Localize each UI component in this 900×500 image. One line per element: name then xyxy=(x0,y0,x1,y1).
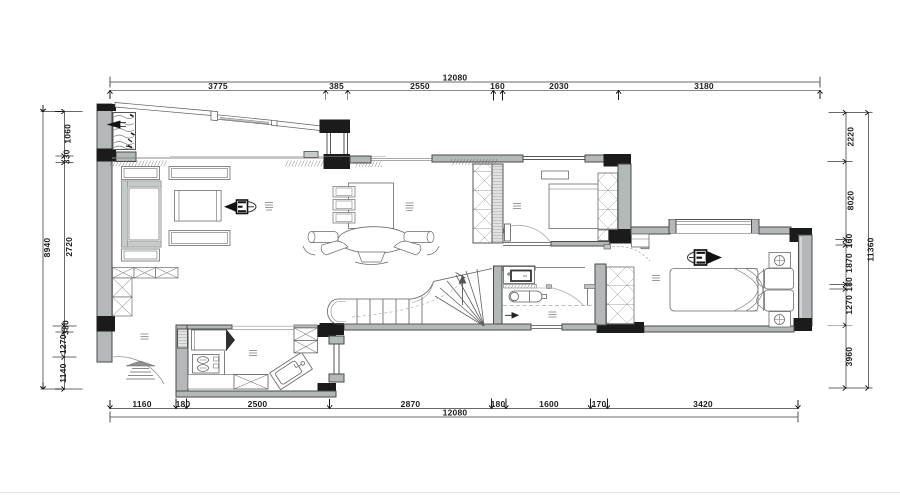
svg-text:3420: 3420 xyxy=(693,399,713,409)
svg-text:180: 180 xyxy=(844,277,854,292)
svg-text:2720: 2720 xyxy=(64,237,74,257)
svg-text:1140: 1140 xyxy=(58,363,68,382)
svg-text:160: 160 xyxy=(490,81,505,91)
svg-text:3775: 3775 xyxy=(208,81,228,91)
svg-text:180: 180 xyxy=(176,399,191,409)
svg-text:1270: 1270 xyxy=(58,334,68,354)
svg-text:160: 160 xyxy=(844,234,854,249)
svg-text:2220: 2220 xyxy=(846,127,856,147)
svg-text:12080: 12080 xyxy=(443,73,468,83)
svg-text:8940: 8940 xyxy=(42,238,52,258)
svg-text:170: 170 xyxy=(592,399,607,409)
svg-text:385: 385 xyxy=(329,81,344,91)
svg-text:330: 330 xyxy=(62,149,72,164)
svg-text:3960: 3960 xyxy=(844,347,854,367)
svg-text:1600: 1600 xyxy=(539,399,559,409)
svg-text:3180: 3180 xyxy=(694,81,714,91)
svg-text:8020: 8020 xyxy=(846,191,856,211)
svg-text:1870: 1870 xyxy=(844,253,854,273)
svg-text:380: 380 xyxy=(60,320,70,335)
svg-text:11360: 11360 xyxy=(865,237,875,261)
svg-text:2550: 2550 xyxy=(410,81,430,91)
svg-text:1160: 1160 xyxy=(132,399,151,409)
svg-text:1270: 1270 xyxy=(844,295,854,315)
svg-text:2030: 2030 xyxy=(549,81,569,91)
svg-text:12080: 12080 xyxy=(443,408,468,418)
svg-text:1060: 1060 xyxy=(63,124,73,144)
svg-text:2870: 2870 xyxy=(401,399,421,409)
svg-text:180: 180 xyxy=(491,399,506,409)
svg-text:2500: 2500 xyxy=(248,399,268,409)
